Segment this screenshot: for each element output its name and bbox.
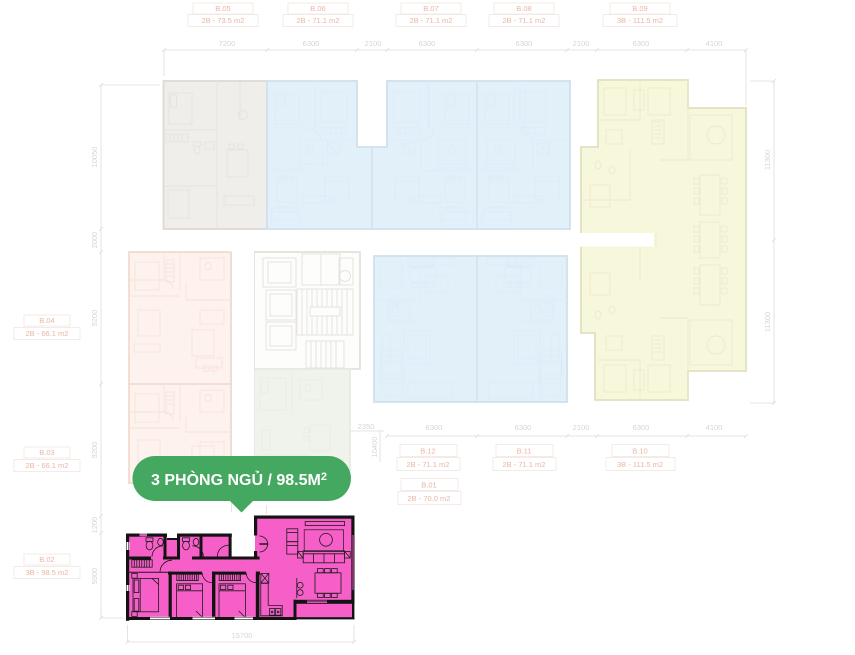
svg-text:1200: 1200 — [90, 517, 99, 534]
svg-text:7200: 7200 — [219, 39, 236, 48]
svg-text:6300: 6300 — [516, 39, 533, 48]
svg-text:B.04: B.04 — [39, 316, 54, 325]
svg-text:4100: 4100 — [706, 423, 723, 432]
svg-text:2350: 2350 — [358, 422, 375, 431]
svg-text:11300: 11300 — [763, 312, 772, 332]
svg-text:2B - 66.1 m2: 2B - 66.1 m2 — [26, 329, 69, 338]
svg-text:9200: 9200 — [90, 442, 99, 459]
svg-text:10050: 10050 — [90, 147, 99, 168]
svg-text:2B - 71.1 m2: 2B - 71.1 m2 — [410, 16, 453, 25]
svg-text:2B - 70.0 m2: 2B - 70.0 m2 — [408, 494, 451, 503]
svg-text:3B - 98.5 m2: 3B - 98.5 m2 — [26, 568, 69, 577]
svg-text:2100: 2100 — [573, 39, 590, 48]
svg-text:3B - 111.5 m2: 3B - 111.5 m2 — [617, 16, 663, 25]
svg-text:2B - 73.5 m2: 2B - 73.5 m2 — [202, 16, 245, 25]
svg-text:2B - 71.1 m2: 2B - 71.1 m2 — [503, 16, 546, 25]
svg-text:2B - 71.1 m2: 2B - 71.1 m2 — [407, 460, 450, 469]
svg-text:2B - 71.1 m2: 2B - 71.1 m2 — [297, 16, 340, 25]
svg-text:B.02: B.02 — [39, 555, 54, 564]
svg-text:2100: 2100 — [365, 39, 382, 48]
svg-text:15700: 15700 — [232, 631, 253, 640]
svg-text:6300: 6300 — [633, 423, 650, 432]
svg-text:2B - 71.1 m2: 2B - 71.1 m2 — [503, 460, 546, 469]
svg-text:B.09: B.09 — [632, 4, 647, 13]
svg-text:3B - 111.5 m2: 3B - 111.5 m2 — [617, 460, 663, 469]
svg-text:B.06: B.06 — [310, 4, 325, 13]
svg-text:B.07: B.07 — [423, 4, 438, 13]
svg-text:B.12: B.12 — [420, 447, 435, 456]
svg-text:B.10: B.10 — [632, 447, 647, 456]
svg-text:6300: 6300 — [515, 423, 532, 432]
svg-text:B.11: B.11 — [517, 447, 532, 456]
svg-text:10400: 10400 — [370, 437, 379, 458]
svg-text:2B - 66.1 m2: 2B - 66.1 m2 — [26, 461, 69, 470]
svg-text:11300: 11300 — [763, 150, 772, 170]
svg-text:5900: 5900 — [90, 568, 99, 585]
svg-text:6300: 6300 — [303, 39, 320, 48]
svg-text:6300: 6300 — [633, 39, 650, 48]
svg-text:2000: 2000 — [90, 232, 99, 249]
svg-text:4100: 4100 — [706, 39, 723, 48]
svg-text:9200: 9200 — [90, 310, 99, 327]
svg-text:6300: 6300 — [426, 423, 443, 432]
svg-text:B.03: B.03 — [39, 448, 54, 457]
svg-text:3 PHÒNG NGỦ / 98.5M2: 3 PHÒNG NGỦ / 98.5M2 — [151, 470, 327, 489]
svg-text:6300: 6300 — [419, 39, 436, 48]
svg-text:B.05: B.05 — [215, 4, 230, 13]
svg-text:2100: 2100 — [573, 423, 590, 432]
svg-text:B.01: B.01 — [421, 481, 436, 490]
svg-text:B.08: B.08 — [516, 4, 531, 13]
